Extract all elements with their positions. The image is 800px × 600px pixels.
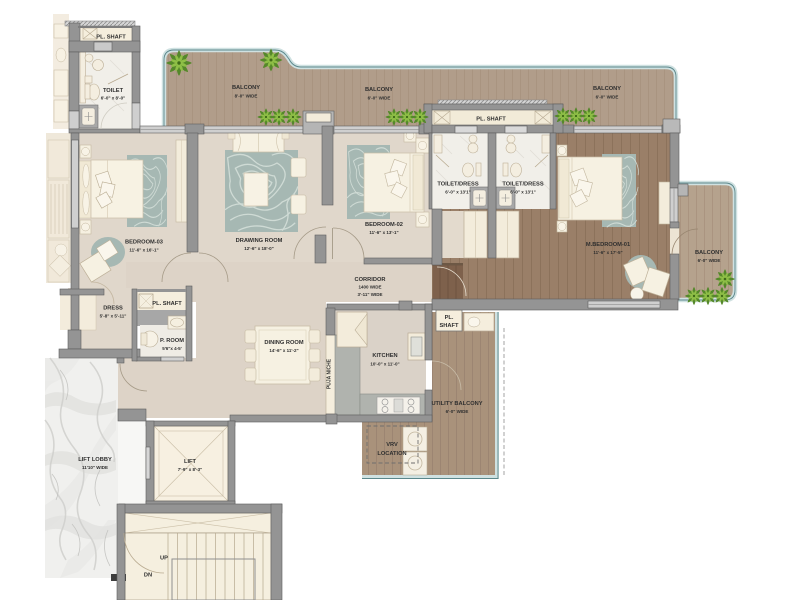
- svg-text:LOCATION: LOCATION: [377, 451, 406, 457]
- svg-text:TOILET/DRESS: TOILET/DRESS: [502, 182, 543, 188]
- svg-text:1400 WIDE: 1400 WIDE: [358, 285, 381, 290]
- svg-text:CORRIDOR: CORRIDOR: [355, 277, 386, 283]
- svg-text:BEDROOM-02: BEDROOM-02: [365, 222, 403, 228]
- svg-text:LIFT LOBBY: LIFT LOBBY: [78, 457, 112, 463]
- svg-text:11'10" WIDE: 11'10" WIDE: [82, 465, 108, 470]
- svg-text:M.BEDROOM-01: M.BEDROOM-01: [586, 242, 630, 248]
- svg-text:BALCONY: BALCONY: [365, 87, 393, 93]
- svg-text:DINING ROOM: DINING ROOM: [264, 340, 303, 346]
- svg-text:PUJA NICHE: PUJA NICHE: [327, 358, 333, 389]
- svg-text:DRAWING ROOM: DRAWING ROOM: [236, 238, 283, 244]
- svg-text:PL.: PL.: [445, 315, 454, 321]
- svg-text:BEDROOM-03: BEDROOM-03: [125, 240, 163, 246]
- svg-text:11'-6" x 17'-5": 11'-6" x 17'-5": [593, 250, 622, 255]
- svg-text:8'-0" WIDE: 8'-0" WIDE: [235, 94, 258, 99]
- svg-text:UP: UP: [160, 556, 168, 562]
- svg-text:14'-6" x 11'-2": 14'-6" x 11'-2": [269, 348, 298, 353]
- svg-text:UTILITY BALCONY: UTILITY BALCONY: [431, 401, 482, 407]
- svg-text:LIFT: LIFT: [184, 459, 197, 465]
- svg-text:TOILET/DRESS: TOILET/DRESS: [437, 182, 478, 188]
- svg-text:6'-0" WIDE: 6'-0" WIDE: [596, 95, 619, 100]
- svg-text:6'-0" WIDE: 6'-0" WIDE: [368, 96, 391, 101]
- svg-text:11'-6" x 13'-1": 11'-6" x 13'-1": [369, 230, 398, 235]
- svg-text:6'-0" x 13'1": 6'-0" x 13'1": [510, 190, 535, 195]
- svg-text:PL. SHAFT: PL. SHAFT: [96, 35, 126, 41]
- svg-text:10'-0" x 11'-0": 10'-0" x 11'-0": [370, 362, 399, 367]
- svg-text:VRV: VRV: [386, 442, 398, 448]
- svg-text:BALCONY: BALCONY: [695, 250, 723, 256]
- svg-text:11'-6" x 16'-1": 11'-6" x 16'-1": [129, 248, 158, 253]
- svg-text:DN: DN: [144, 573, 152, 579]
- svg-text:7'-9" x 8'-3": 7'-9" x 8'-3": [178, 467, 202, 472]
- svg-text:PL. SHAFT: PL. SHAFT: [152, 301, 182, 307]
- svg-text:12'-6" x 18'-0": 12'-6" x 18'-0": [244, 246, 273, 251]
- svg-text:6'-0" x 13'1": 6'-0" x 13'1": [445, 190, 470, 195]
- svg-text:5'6"x 4-5': 5'6"x 4-5': [162, 346, 182, 351]
- svg-text:KITCHEN: KITCHEN: [372, 353, 397, 359]
- svg-text:PL. SHAFT: PL. SHAFT: [476, 117, 506, 123]
- svg-text:DRESS: DRESS: [103, 306, 123, 312]
- svg-text:TOILET: TOILET: [103, 88, 124, 94]
- svg-text:BALCONY: BALCONY: [232, 85, 260, 91]
- svg-text:6'-0" x 8'-0": 6'-0" x 8'-0": [101, 96, 125, 101]
- svg-text:3'-11" WIDE: 3'-11" WIDE: [358, 292, 383, 297]
- svg-text:SHAFT: SHAFT: [440, 323, 459, 329]
- svg-text:6'-0" WIDE: 6'-0" WIDE: [446, 409, 469, 414]
- svg-text:5'-8" x 5'-11": 5'-8" x 5'-11": [100, 314, 127, 319]
- svg-text:6'-0" WIDE: 6'-0" WIDE: [698, 258, 721, 263]
- svg-text:P. ROOM: P. ROOM: [160, 338, 184, 344]
- svg-text:BALCONY: BALCONY: [593, 86, 621, 92]
